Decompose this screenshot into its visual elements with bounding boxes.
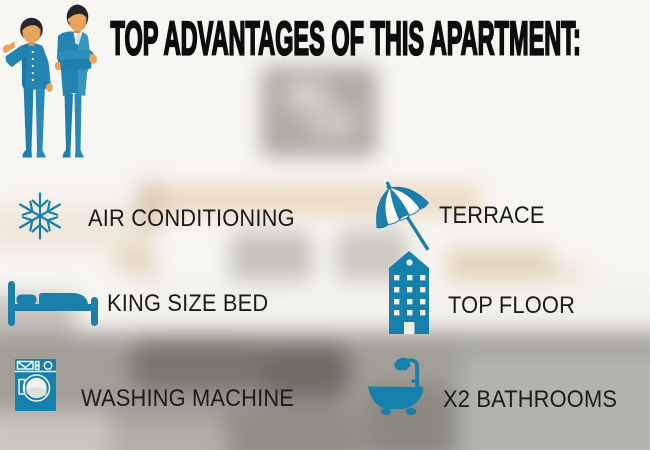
svg-text:TOP ADVANTAGES OF THIS APARTME: TOP ADVANTAGES OF THIS APARTMENT: [111, 12, 581, 65]
